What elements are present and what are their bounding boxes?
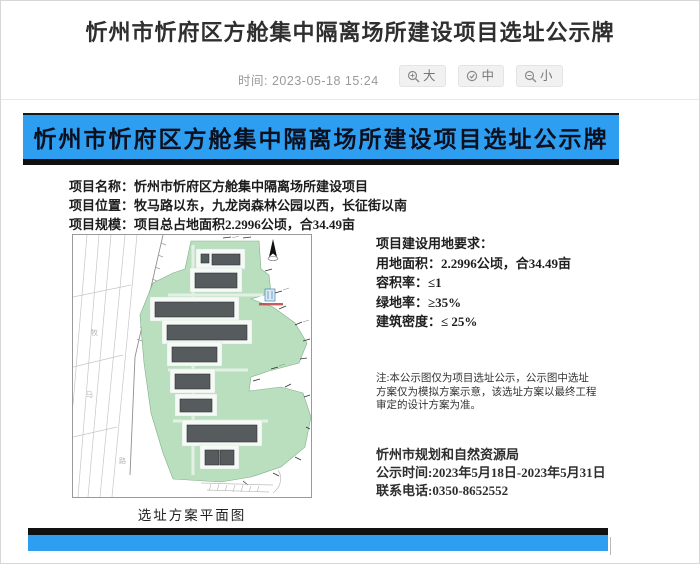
map-building bbox=[155, 302, 234, 317]
zoom-check-icon bbox=[466, 70, 479, 83]
map-building bbox=[172, 347, 217, 362]
map-caption: 选址方案平面图 bbox=[72, 504, 312, 524]
map-building bbox=[180, 399, 212, 412]
project-scale-label: 项目规模： bbox=[69, 217, 134, 232]
notice-banner: 忻州市忻府区方舱集中隔离场所建设项目选址公示牌 bbox=[23, 113, 619, 159]
project-name-label: 项目名称： bbox=[69, 179, 134, 194]
project-info: 项目名称：忻州市忻府区方舱集中隔离场所建设项目 项目位置：牧马路以东，九龙岗森林… bbox=[69, 177, 407, 234]
requirement-green-value: ≥35% bbox=[428, 295, 461, 310]
project-location-label: 项目位置： bbox=[69, 198, 134, 213]
footer-black-bar bbox=[28, 528, 608, 535]
requirement-area-line: 用地面积：2.2996公顷，合34.49亩 bbox=[376, 254, 571, 274]
footer-blue-bar bbox=[28, 535, 608, 551]
font-size-large-button[interactable]: 大 bbox=[399, 65, 446, 87]
north-arrow-icon bbox=[268, 239, 278, 261]
map-building bbox=[195, 273, 237, 288]
map-building bbox=[175, 374, 210, 389]
header-divider bbox=[1, 99, 699, 100]
page: 忻州市忻府区方舱集中隔离场所建设项目选址公示牌 时间: 2023-05-18 1… bbox=[0, 0, 700, 564]
requirement-green-label: 绿地率： bbox=[376, 295, 428, 310]
site-plan-map: 牧 马 路 bbox=[72, 234, 312, 498]
requirement-far-label: 容积率： bbox=[376, 275, 428, 290]
requirement-far-line: 容积率：≤1 bbox=[376, 273, 571, 293]
font-size-controls: 大 中 小 bbox=[399, 65, 563, 87]
publish-time: 时间: 2023-05-18 15:24 bbox=[238, 70, 379, 89]
road-label-char-2: 马 bbox=[86, 391, 93, 399]
notice-banner-title: 忻州市忻府区方舱集中隔离场所建设项目选址公示牌 bbox=[34, 120, 609, 154]
requirement-density-line: 建筑密度：≤ 25% bbox=[376, 312, 571, 332]
font-size-small-button[interactable]: 小 bbox=[516, 65, 563, 87]
disclaimer-note: 注:本公示图仅为项目选址公示，公示图中选址方案仅为模拟方案示意，该选址方案以最终… bbox=[376, 372, 598, 413]
map-building bbox=[201, 254, 209, 263]
project-name-value: 忻州市忻府区方舱集中隔离场所建设项目 bbox=[134, 179, 368, 194]
project-location-value: 牧马路以东，九龙岗森林公园以西，长征街以南 bbox=[134, 198, 407, 213]
road-label-char-1: 牧 bbox=[91, 328, 98, 337]
map-building bbox=[212, 254, 240, 265]
map-building bbox=[187, 425, 257, 442]
time-label: 时间: bbox=[238, 74, 268, 88]
agency-info: 忻州市规划和自然资源局 公示时间:2023年5月18日-2023年5月31日 联… bbox=[376, 446, 606, 500]
font-size-medium-label: 中 bbox=[482, 69, 495, 83]
requirement-far-value: ≤1 bbox=[428, 275, 442, 290]
map-building bbox=[220, 450, 234, 465]
font-size-small-label: 小 bbox=[540, 69, 553, 83]
banner-black-bar bbox=[23, 159, 619, 165]
requirement-density-label: 建筑密度： bbox=[376, 314, 441, 329]
project-name-line: 项目名称：忻州市忻府区方舱集中隔离场所建设项目 bbox=[69, 177, 407, 196]
font-size-large-label: 大 bbox=[423, 69, 436, 83]
meta-row: 时间: 2023-05-18 15:24 大 bbox=[1, 65, 699, 91]
requirement-density-value: ≤ 25% bbox=[441, 314, 477, 329]
contact-phone: 联系电话:0350-8652552 bbox=[376, 482, 606, 500]
project-scale-line: 项目规模：项目总占地面积2.2996公顷，合34.49亩 bbox=[69, 215, 407, 234]
project-scale-value: 项目总占地面积2.2996公顷，合34.49亩 bbox=[134, 217, 355, 232]
site-plan-drawing: 牧 马 路 bbox=[73, 235, 311, 497]
agency-name: 忻州市规划和自然资源局 bbox=[376, 446, 606, 464]
requirements-title: 项目建设用地要求： bbox=[376, 234, 571, 254]
scan-artifact-line bbox=[610, 537, 611, 555]
requirement-green-line: 绿地率：≥35% bbox=[376, 293, 571, 313]
zoom-out-icon bbox=[524, 70, 537, 83]
time-value: 2023-05-18 15:24 bbox=[272, 74, 379, 88]
page-title: 忻州市忻府区方舱集中隔离场所建设项目选址公示牌 bbox=[1, 15, 699, 47]
requirement-area-label: 用地面积： bbox=[376, 256, 441, 271]
publicity-period: 公示时间:2023年5月18日-2023年5月31日 bbox=[376, 464, 606, 482]
map-building bbox=[167, 325, 247, 340]
font-size-medium-button[interactable]: 中 bbox=[458, 65, 505, 87]
land-use-requirements: 项目建设用地要求： 用地面积：2.2996公顷，合34.49亩 容积率：≤1 绿… bbox=[376, 234, 571, 332]
map-building bbox=[205, 450, 219, 465]
zoom-in-icon bbox=[407, 70, 420, 83]
requirement-area-value: 2.2996公顷，合34.49亩 bbox=[441, 256, 571, 271]
project-location-line: 项目位置：牧马路以东，九龙岗森林公园以西，长征街以南 bbox=[69, 196, 407, 215]
road-label-char-3: 路 bbox=[119, 456, 126, 465]
